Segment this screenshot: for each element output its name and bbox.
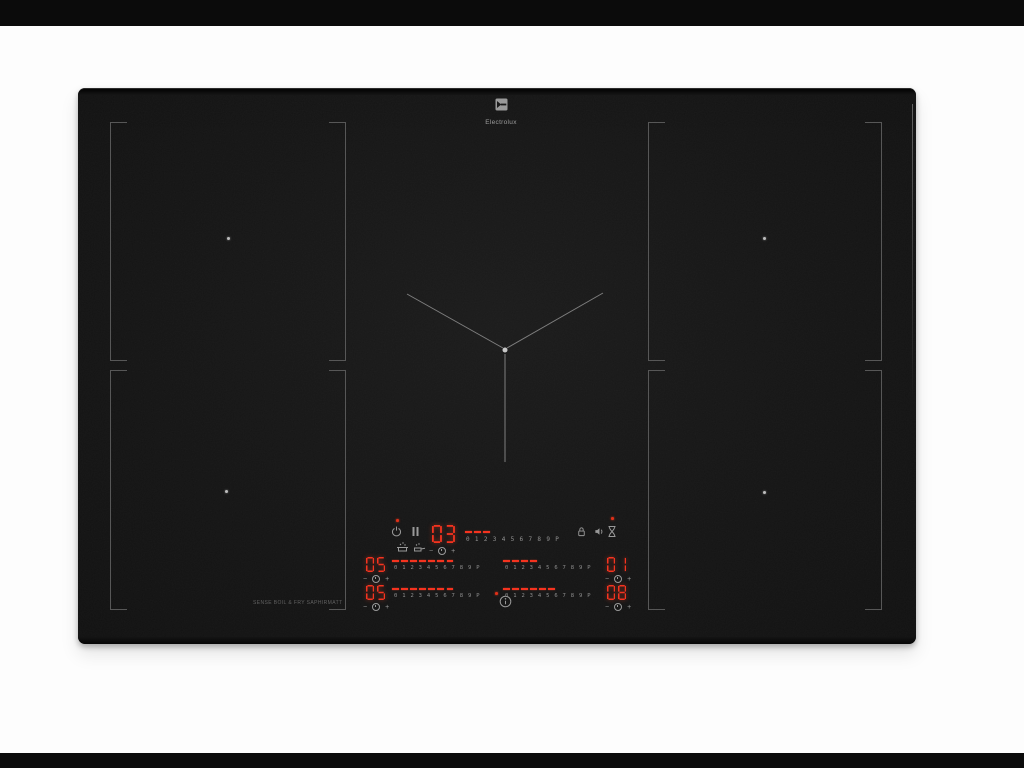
lock-icon[interactable] — [576, 526, 587, 537]
level-dashes-left-bottom — [392, 588, 453, 590]
timer-display — [432, 525, 455, 543]
sense-fry-icon[interactable] — [413, 541, 426, 553]
minus-button[interactable]: − — [363, 576, 367, 583]
plus-button[interactable]: + — [385, 576, 389, 583]
zone-bracket-left — [110, 122, 127, 361]
zone-timer-icon[interactable] — [614, 603, 622, 611]
zone-timer-icon[interactable] — [438, 547, 446, 555]
zone-adjust-left-top: − + — [363, 575, 389, 583]
zone-adjust-right-bottom: − + — [605, 603, 631, 611]
power-slider-right-top[interactable]: 0 1 2 3 4 5 6 7 8 9 P — [505, 565, 591, 571]
dash-segment — [410, 560, 417, 562]
zone-adjust-right-top: − + — [605, 575, 631, 583]
induction-hob-surface: Electrolux — [78, 88, 916, 644]
power-slider-right-bottom[interactable]: 0 1 2 3 4 5 6 7 8 9 P — [505, 593, 591, 599]
pause-icon[interactable] — [411, 526, 420, 537]
plus-button[interactable]: + — [627, 576, 631, 583]
dash-segment — [401, 560, 408, 562]
plus-button[interactable]: + — [627, 604, 631, 611]
cooking-zone-left-bottom — [110, 370, 346, 610]
electrolux-wordmark: Electrolux — [478, 119, 524, 126]
electrolux-logo: Electrolux — [478, 98, 524, 126]
bottom-letterbox-bar — [0, 753, 1024, 768]
sound-icon[interactable] — [594, 526, 605, 537]
dash-segment — [503, 588, 510, 590]
dash-segment — [483, 531, 490, 533]
zone-timer-icon[interactable] — [372, 575, 380, 583]
zone-bracket-left — [110, 370, 127, 610]
hob-bottom-bevel — [78, 637, 916, 644]
power-display-left-top — [366, 557, 385, 572]
zone-bracket-right — [329, 122, 346, 361]
zone-bracket-right — [865, 370, 882, 610]
timer-icon[interactable] — [606, 525, 618, 538]
zone-center-dot — [225, 490, 228, 493]
glass-edge-reflection — [912, 104, 913, 404]
feature-text: SENSE BOIL & FRY SAPHIRMATT — [253, 600, 343, 606]
dash-segment — [548, 588, 555, 590]
power-display-right-bottom — [607, 585, 626, 600]
zone-center-dot — [763, 237, 766, 240]
level-dashes-right-bottom — [503, 588, 555, 590]
cooking-zone-right-top — [648, 122, 882, 361]
dash-segment — [447, 588, 454, 590]
cooking-zone-right-bottom — [648, 370, 882, 610]
zone-bracket-right — [865, 122, 882, 361]
dash-segment — [530, 560, 537, 562]
level-dashes-left-top — [392, 560, 453, 562]
zone-bracket-right — [329, 370, 346, 610]
power-slider-left-top[interactable]: 0 1 2 3 4 5 6 7 8 9 P — [394, 565, 480, 571]
dash-segment — [392, 588, 399, 590]
zone-adjust-left-bottom: − + — [363, 603, 389, 611]
timer-adjust-controls: − + — [429, 547, 455, 555]
dash-segment — [437, 560, 444, 562]
power-icon[interactable] — [391, 526, 402, 537]
flex-zone-guide-lines — [398, 283, 618, 473]
dash-segment — [503, 560, 510, 562]
indicator-dot-info-alert — [495, 592, 498, 595]
timer-minus-button[interactable]: − — [429, 548, 433, 555]
zone-center-dot — [227, 237, 230, 240]
cooking-zone-left-top — [110, 122, 346, 361]
dash-segment — [465, 531, 472, 533]
dash-segment — [521, 560, 528, 562]
dash-segment — [530, 588, 537, 590]
dash-segment — [474, 531, 481, 533]
indicator-dot-timer-alert — [611, 517, 614, 520]
power-slider-timer[interactable]: 0 1 2 3 4 5 6 7 8 9 P — [466, 536, 560, 543]
power-display-left-bottom — [366, 585, 385, 600]
dash-segment — [447, 560, 454, 562]
product-photo-stage: Electrolux — [0, 0, 1024, 768]
dash-segment — [392, 560, 399, 562]
dash-segment — [410, 588, 417, 590]
minus-button[interactable]: − — [605, 576, 609, 583]
dash-segment — [401, 588, 408, 590]
timer-plus-button[interactable]: + — [451, 548, 455, 555]
zone-center-dot — [763, 491, 766, 494]
dash-segment — [512, 588, 519, 590]
dash-segment — [428, 560, 435, 562]
dash-segment — [437, 588, 444, 590]
zone-bracket-left — [648, 122, 665, 361]
zone-timer-icon[interactable] — [614, 575, 622, 583]
timer-level-dashes — [465, 531, 490, 533]
power-display-right-top — [607, 557, 626, 572]
dash-segment — [419, 560, 426, 562]
indicator-dot-main-power — [396, 519, 399, 522]
power-slider-left-bottom[interactable]: 0 1 2 3 4 5 6 7 8 9 P — [394, 593, 480, 599]
sense-boil-icon[interactable] — [396, 541, 409, 553]
minus-button[interactable]: − — [363, 604, 367, 611]
zone-bracket-left — [648, 370, 665, 610]
electrolux-logo-mark — [495, 98, 508, 111]
hob-top-bevel — [78, 88, 916, 95]
plus-button[interactable]: + — [385, 604, 389, 611]
dash-segment — [521, 588, 528, 590]
dash-segment — [428, 588, 435, 590]
dash-segment — [539, 588, 546, 590]
dash-segment — [419, 588, 426, 590]
dash-segment — [512, 560, 519, 562]
top-letterbox-bar — [0, 0, 1024, 26]
level-dashes-right-top — [503, 560, 537, 562]
minus-button[interactable]: − — [605, 604, 609, 611]
zone-timer-icon[interactable] — [372, 603, 380, 611]
